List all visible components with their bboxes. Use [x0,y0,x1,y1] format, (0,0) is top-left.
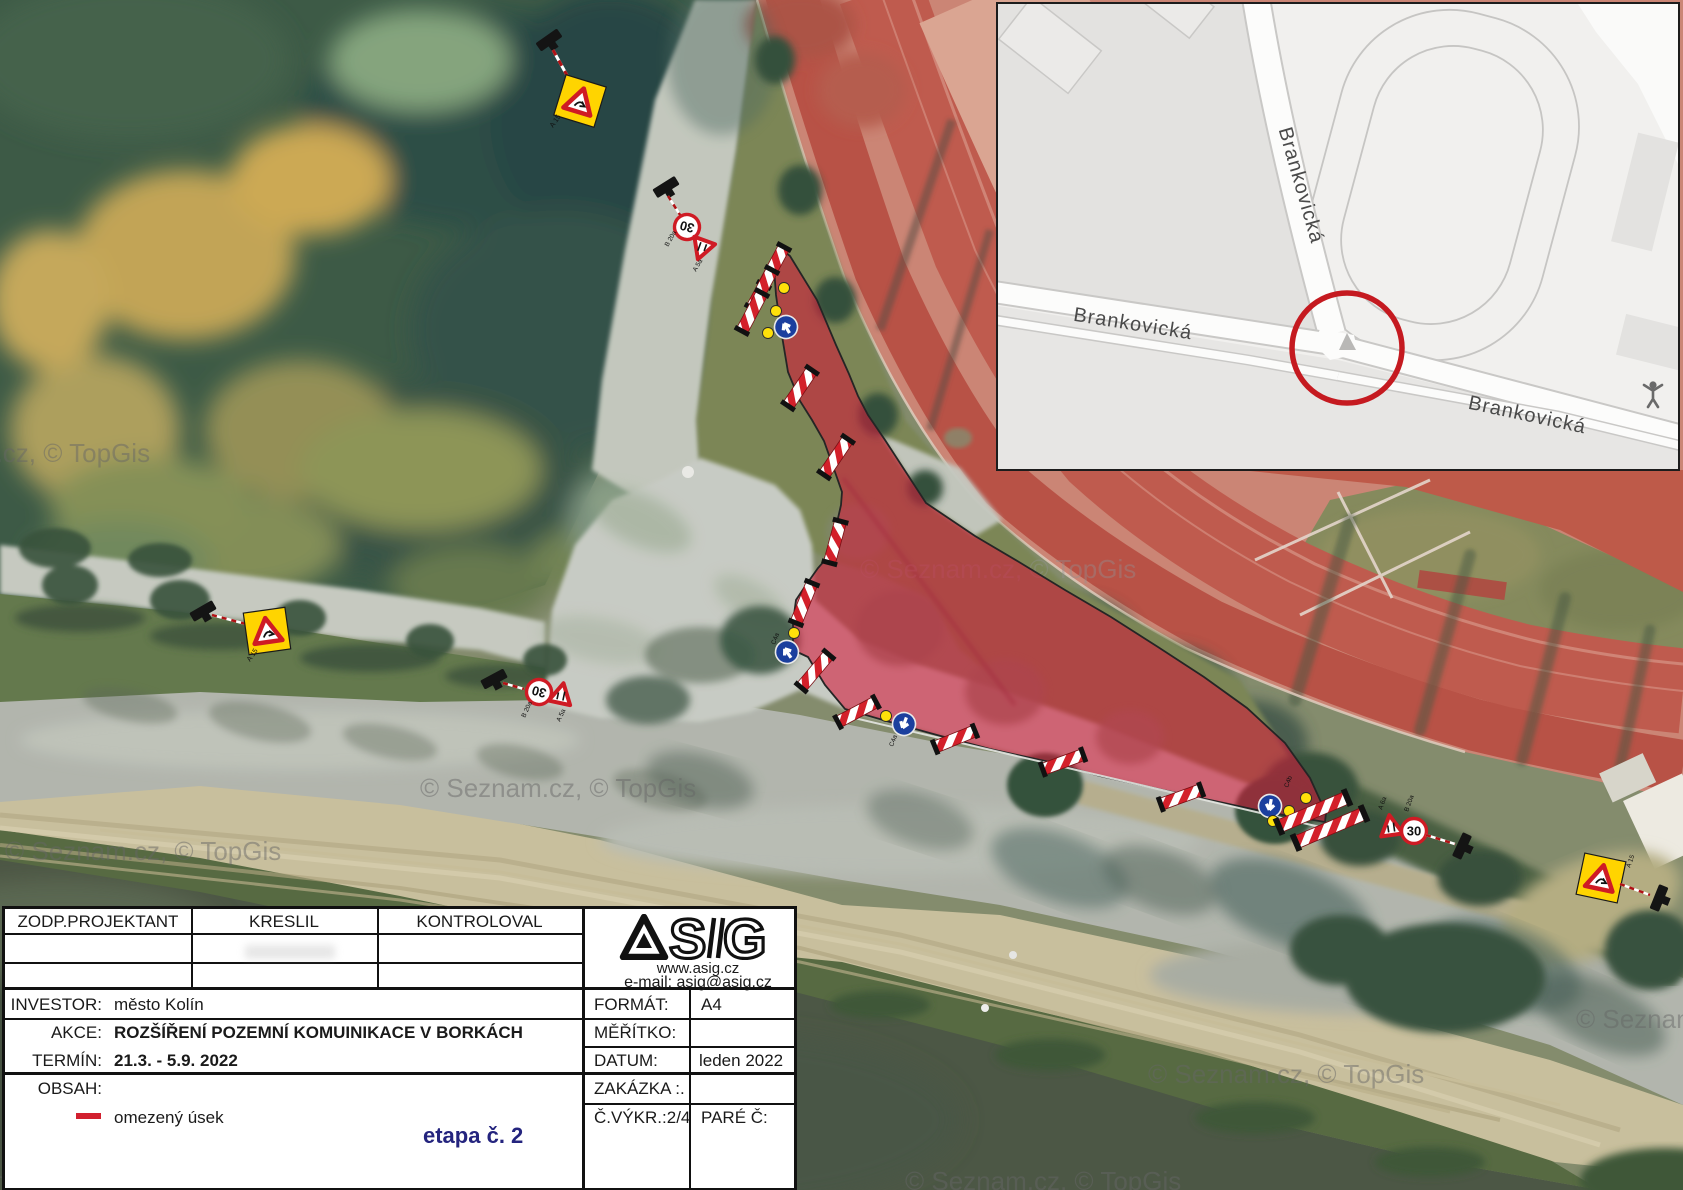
svg-text:G: G [723,914,767,960]
svg-text:S: S [669,914,706,960]
